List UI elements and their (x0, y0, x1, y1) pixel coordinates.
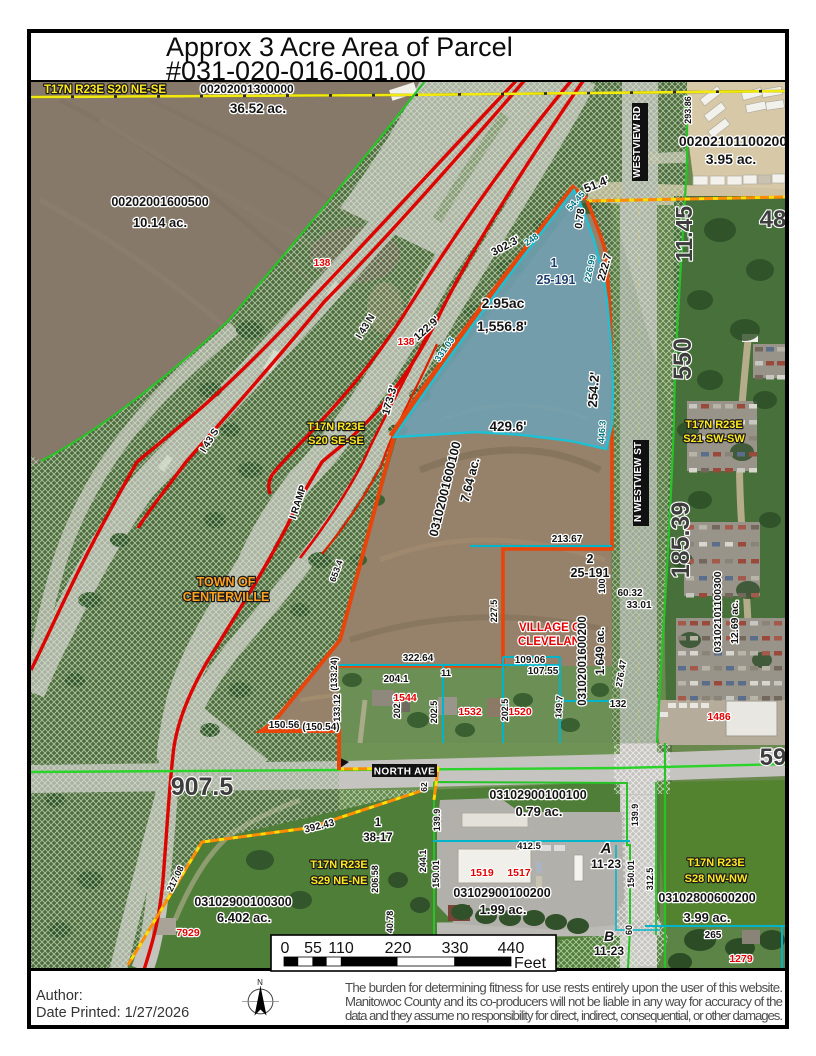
svg-text:254.2': 254.2' (585, 371, 602, 408)
svg-text:11-23: 11-23 (594, 944, 624, 958)
svg-text:00202101100200: 00202101100200 (679, 133, 787, 149)
svg-text:00202001600500: 00202001600500 (111, 195, 208, 209)
svg-text:1517: 1517 (507, 867, 531, 879)
svg-text:VILLAGE O: VILLAGE O (519, 622, 581, 634)
svg-text:139.9: 139.9 (432, 809, 442, 832)
svg-text:T17N R23E: T17N R23E (310, 859, 367, 871)
svg-text:227.5: 227.5 (489, 600, 499, 623)
svg-text:220: 220 (385, 940, 412, 957)
svg-text:60: 60 (624, 925, 634, 935)
svg-text:25-191: 25-191 (537, 273, 576, 287)
svg-text:03102101100300: 03102101100300 (712, 571, 724, 652)
svg-text:1486: 1486 (707, 711, 731, 723)
svg-text:3.95 ac.: 3.95 ac. (706, 151, 757, 167)
svg-text:CLEVELAN: CLEVELAN (518, 636, 580, 648)
svg-text:1,556.8': 1,556.8' (477, 318, 527, 334)
svg-text:A: A (600, 840, 612, 857)
svg-text:1279: 1279 (729, 953, 753, 965)
svg-text:T17N R23E: T17N R23E (687, 857, 744, 869)
svg-text:138: 138 (398, 337, 415, 348)
svg-text:1: 1 (375, 817, 382, 829)
svg-text:33.01: 33.01 (626, 600, 651, 611)
svg-text:1519: 1519 (470, 867, 494, 879)
svg-text:1544: 1544 (393, 692, 417, 704)
svg-text:1532: 1532 (458, 706, 482, 718)
svg-text:0: 0 (281, 940, 290, 957)
svg-text:1.99 ac.: 1.99 ac. (480, 902, 527, 917)
svg-text:38-17: 38-17 (363, 832, 392, 844)
svg-text:133.12: 133.12 (332, 694, 342, 722)
svg-text:62: 62 (419, 782, 429, 792)
svg-text:293.86: 293.86 (683, 96, 693, 124)
svg-text:T17N R23E: T17N R23E (307, 421, 364, 433)
svg-text:150.01: 150.01 (431, 860, 441, 888)
svg-text:03102900100200: 03102900100200 (453, 886, 550, 900)
svg-text:#031-020-016-001.00: #031-020-016-001.00 (166, 56, 426, 86)
svg-text:data and they assume no respon: data and they assume no responsibility f… (345, 1008, 783, 1023)
svg-text:3.99 ac.: 3.99 ac. (684, 910, 731, 925)
svg-text:T17N R23E: T17N R23E (685, 419, 742, 431)
svg-text:550: 550 (669, 338, 697, 380)
svg-text:S20 SE-SE: S20 SE-SE (308, 435, 364, 447)
svg-text:204.1: 204.1 (383, 674, 408, 685)
svg-text:1520: 1520 (508, 706, 532, 718)
svg-text:60.32: 60.32 (617, 588, 642, 599)
svg-text:CENTERVILLE: CENTERVILLE (183, 590, 270, 604)
svg-text:11.45: 11.45 (671, 206, 697, 262)
svg-text:185.39: 185.39 (667, 502, 695, 578)
svg-text:132: 132 (610, 699, 627, 710)
svg-text:109.06: 109.06 (515, 655, 546, 666)
svg-text:11-23: 11-23 (591, 857, 621, 871)
svg-text:TOWN OF: TOWN OF (197, 575, 256, 589)
svg-text:2: 2 (587, 552, 594, 566)
svg-text:WESTVIEW RD: WESTVIEW RD (632, 106, 643, 178)
svg-text:107.55: 107.55 (528, 666, 559, 677)
svg-text:1: 1 (551, 256, 558, 270)
svg-text:(133.24): (133.24) (329, 657, 339, 691)
svg-text:36.52 ac.: 36.52 ac. (230, 101, 286, 116)
svg-text:The burden for determining fit: The burden for determining fitness for u… (345, 980, 783, 995)
svg-text:03102900100300: 03102900100300 (194, 895, 291, 909)
svg-text:25-191: 25-191 (571, 566, 610, 580)
svg-text:6.402 ac.: 6.402 ac. (217, 910, 271, 925)
svg-text:138: 138 (314, 258, 331, 269)
svg-text:11: 11 (441, 668, 452, 679)
svg-text:N: N (257, 978, 263, 987)
svg-text:Date Printed: 1/27/2026: Date Printed: 1/27/2026 (36, 1005, 189, 1021)
svg-text:265: 265 (705, 930, 722, 941)
svg-text:100: 100 (597, 578, 607, 593)
svg-text:S21 SW-SW: S21 SW-SW (683, 433, 745, 445)
svg-text:03102001600200: 03102001600200 (577, 616, 589, 706)
svg-text:149.7: 149.7 (553, 695, 565, 718)
svg-text:150.56: 150.56 (269, 720, 300, 731)
svg-text:2.95ac: 2.95ac (482, 295, 525, 311)
svg-text:322.64: 322.64 (403, 653, 434, 664)
svg-text:(150.54): (150.54) (302, 722, 339, 733)
svg-text:330: 330 (442, 940, 469, 957)
svg-text:Manitowoc County and its co-pr: Manitowoc County and its co-producers wi… (345, 994, 783, 1009)
svg-text:Author:: Author: (36, 988, 83, 1004)
svg-text:0.79 ac.: 0.79 ac. (516, 804, 563, 819)
svg-text:N WESTVIEW ST: N WESTVIEW ST (633, 442, 644, 522)
svg-text:412.5: 412.5 (517, 841, 541, 852)
svg-text:NORTH AVE: NORTH AVE (374, 767, 435, 778)
svg-text:40.78: 40.78 (385, 911, 395, 934)
svg-text:206.58: 206.58 (370, 865, 380, 893)
svg-text:48: 48 (760, 206, 787, 233)
svg-text:03102800600200: 03102800600200 (658, 891, 755, 905)
svg-text:244.1: 244.1 (418, 850, 428, 873)
svg-text:55: 55 (304, 940, 322, 957)
svg-text:1.649 ac.: 1.649 ac. (595, 627, 607, 675)
svg-text:10.14 ac.: 10.14 ac. (133, 215, 187, 230)
svg-text:S28 NW-NW: S28 NW-NW (685, 873, 748, 885)
svg-text:B: B (604, 928, 614, 944)
svg-text:110: 110 (328, 940, 354, 957)
svg-text:139.9: 139.9 (630, 804, 640, 827)
svg-text:12.69 ac.: 12.69 ac. (729, 600, 741, 644)
svg-text:150.01: 150.01 (626, 860, 636, 888)
svg-text:S29 NE-NE: S29 NE-NE (311, 875, 368, 887)
svg-text:429.6': 429.6' (490, 419, 527, 434)
svg-text:213.67: 213.67 (552, 534, 583, 545)
svg-text:907.5: 907.5 (171, 773, 234, 801)
svg-text:Feet: Feet (514, 955, 547, 972)
svg-text:446.3: 446.3 (596, 420, 608, 443)
svg-text:03102900100100: 03102900100100 (489, 788, 586, 802)
svg-text:7929: 7929 (176, 927, 200, 939)
svg-text:202.5: 202.5 (429, 701, 439, 724)
svg-text:312.5: 312.5 (645, 868, 655, 891)
svg-text:T17N R23E S20 NE-SE: T17N R23E S20 NE-SE (44, 84, 166, 96)
